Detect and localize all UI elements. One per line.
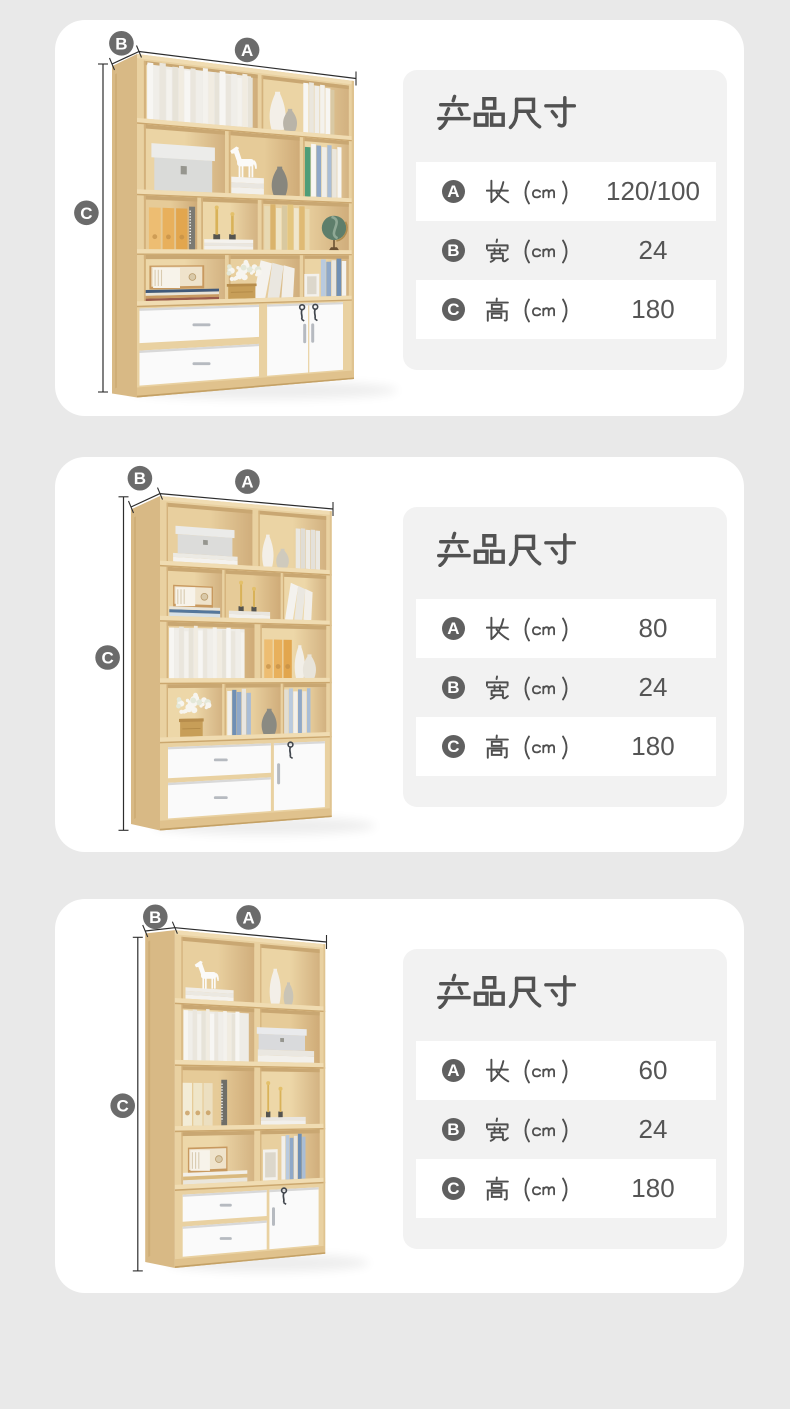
svg-text:A: A <box>241 473 253 492</box>
svg-text:B: B <box>149 908 161 927</box>
svg-text:C: C <box>80 204 92 223</box>
svg-text:A: A <box>241 41 253 60</box>
svg-text:C: C <box>117 1097 129 1116</box>
svg-text:C: C <box>101 649 113 668</box>
svg-text:B: B <box>115 34 127 53</box>
svg-text:A: A <box>242 908 254 927</box>
svg-text:B: B <box>134 469 146 488</box>
